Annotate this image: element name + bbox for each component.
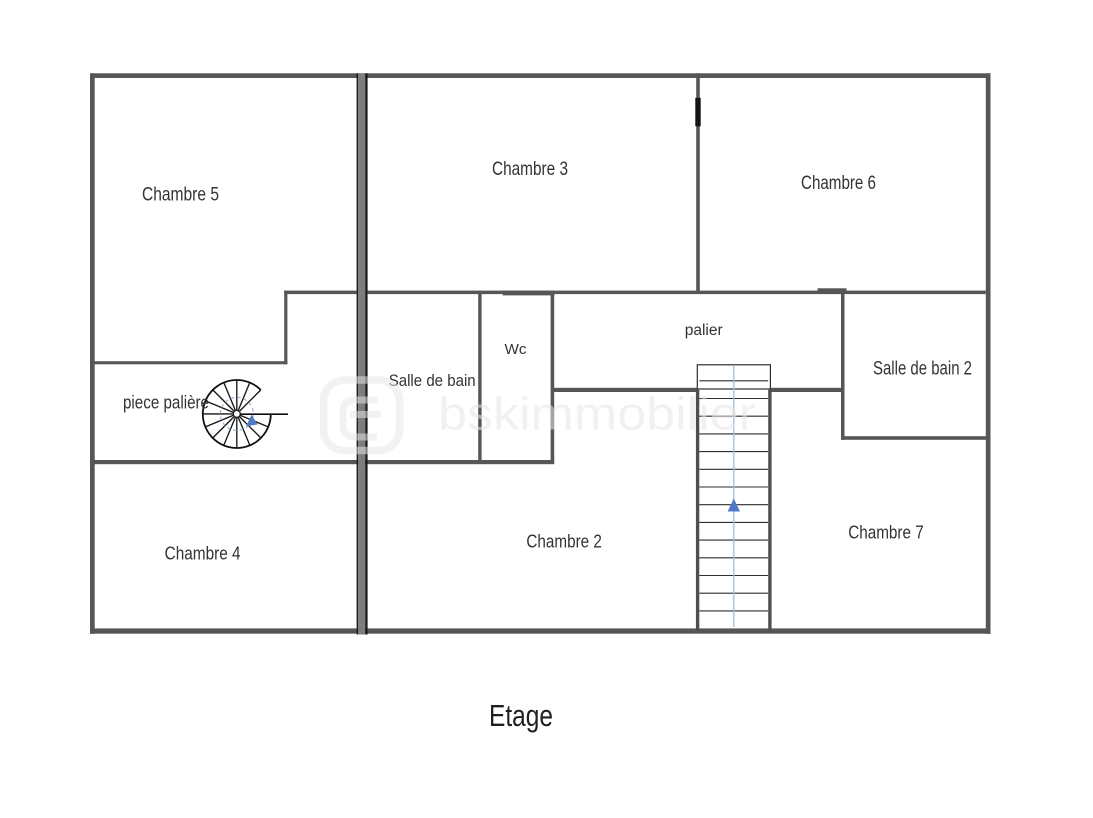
svg-text:Chambre 3: Chambre 3 [492,158,568,180]
svg-text:Chambre 5: Chambre 5 [142,184,219,206]
svg-text:bskimmobilier: bskimmobilier [438,388,756,440]
svg-text:Chambre 7: Chambre 7 [848,521,924,542]
svg-text:Chambre 4: Chambre 4 [165,543,241,564]
svg-text:piece palière: piece palière [123,393,209,413]
svg-text:Chambre 6: Chambre 6 [801,173,876,194]
svg-text:Salle de bain 2: Salle de bain 2 [873,359,972,380]
svg-text:palier: palier [685,322,723,339]
svg-text:Etage: Etage [489,698,553,733]
svg-text:Wc: Wc [505,342,527,358]
svg-text:Chambre 2: Chambre 2 [526,530,602,551]
